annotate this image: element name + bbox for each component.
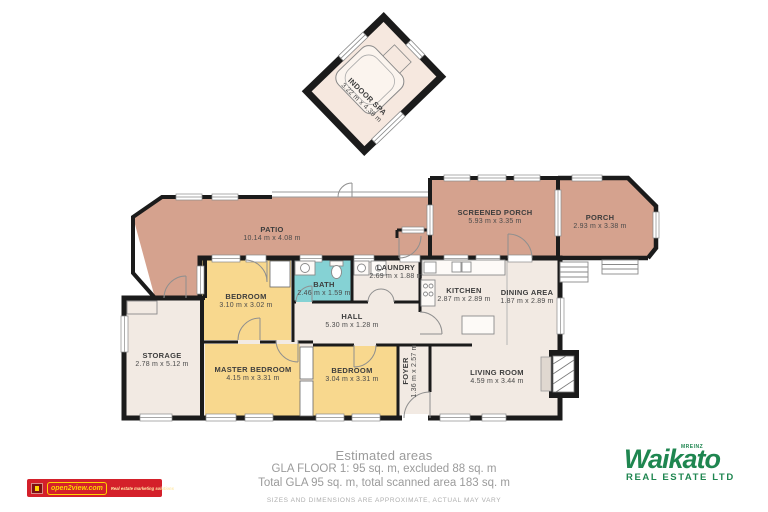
indoor-spa-building <box>302 12 447 156</box>
closet <box>300 347 313 379</box>
waikato-subtitle: REAL ESTATE LTD <box>626 472 735 483</box>
open2view-wordmark: open2view.com <box>47 482 107 495</box>
floorplan-drawing <box>0 0 768 512</box>
wardrobe <box>270 261 290 287</box>
master-bedroom-floor <box>205 344 300 416</box>
open2view-logo: open2view.com Real estate marketing solu… <box>27 479 162 497</box>
closet <box>300 381 313 416</box>
hearth <box>541 357 551 391</box>
bedroom2-floor <box>313 346 398 416</box>
disclaimer-text: SIZES AND DIMENSIONS ARE APPROXIMATE, AC… <box>0 497 768 504</box>
screened-porch-floor <box>430 178 558 258</box>
toilet-bowl <box>332 266 342 279</box>
open2view-camera-icon <box>31 483 43 494</box>
porch-steps <box>560 260 638 282</box>
open2view-tagline: Real estate marketing solutions <box>111 486 174 491</box>
waikato-wordmark: Waikato <box>624 446 720 473</box>
floorplan-page: INDOOR SPA 3.22 m x 4.39 m PATIO 10.14 m… <box>0 0 768 512</box>
kitchen-island <box>462 316 494 334</box>
waikato-logo: MREINZ Waikato REAL ESTATE LTD <box>624 444 756 488</box>
fireplace <box>541 350 579 398</box>
deck-edge <box>272 192 430 197</box>
